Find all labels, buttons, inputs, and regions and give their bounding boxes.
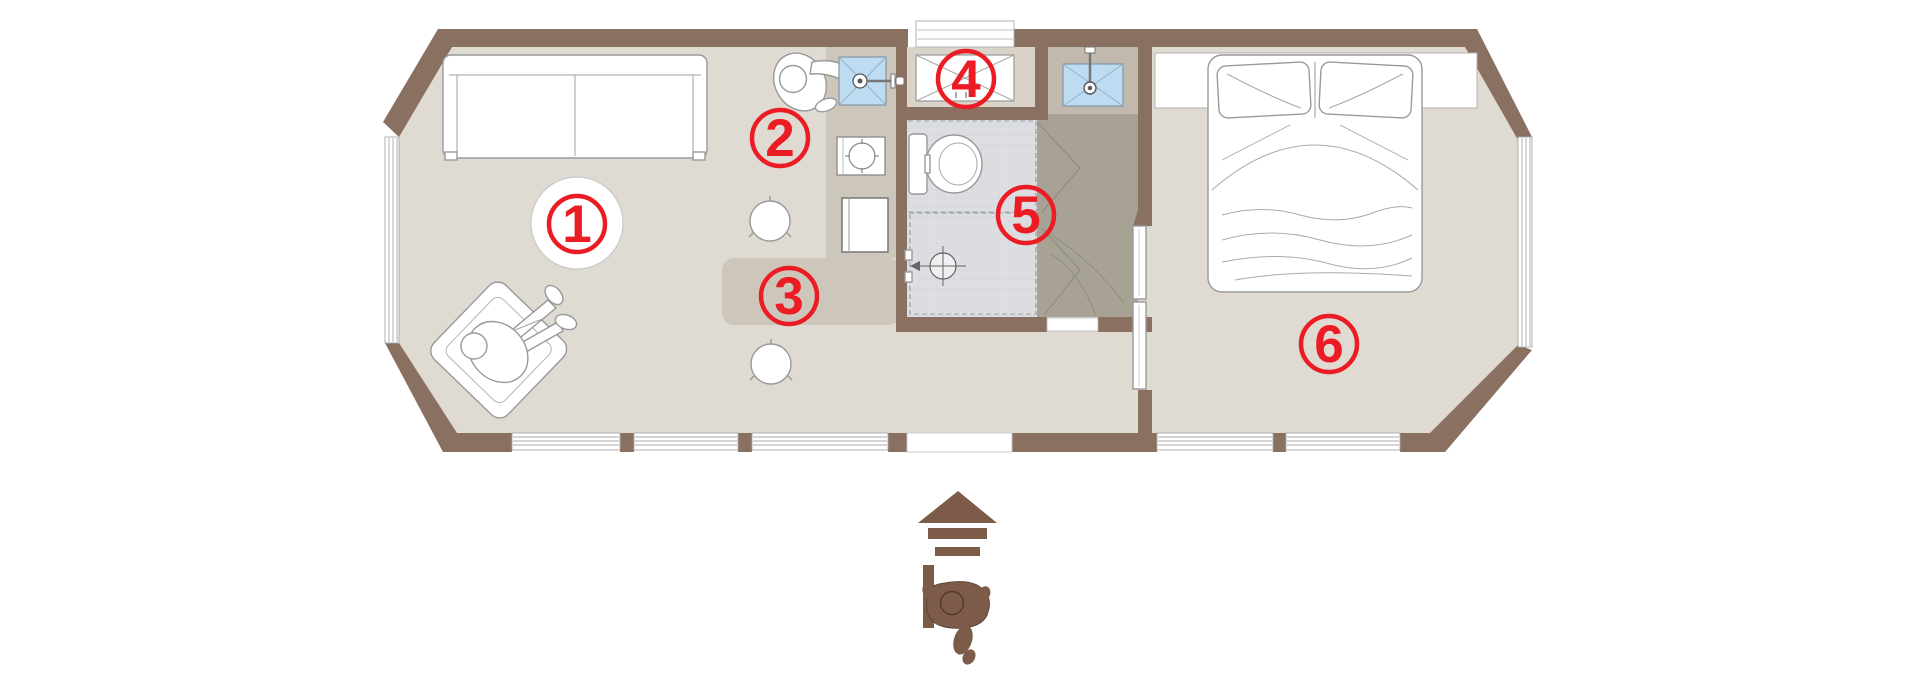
wall-top-left-span bbox=[438, 29, 908, 47]
window-bottom bbox=[634, 433, 738, 450]
double-bed bbox=[1208, 55, 1422, 292]
pillow bbox=[1319, 62, 1414, 119]
floor-plan-canvas: 1 2 3 4 5 6 bbox=[0, 0, 1920, 680]
window-bottom bbox=[512, 433, 620, 450]
wall-top-right-span bbox=[1013, 29, 1477, 47]
wall-bottom-segment bbox=[1012, 433, 1157, 452]
entrance-symbol bbox=[918, 491, 997, 667]
entrance-bar bbox=[935, 547, 980, 556]
marker-number: 3 bbox=[774, 267, 803, 326]
marker-number: 2 bbox=[765, 109, 794, 168]
marker-number: 6 bbox=[1314, 315, 1343, 374]
wall-bottom-segment bbox=[1400, 433, 1445, 452]
window-bottom bbox=[1157, 433, 1273, 450]
wall-bottom-pier bbox=[738, 433, 752, 452]
wall-bottom-segment bbox=[443, 433, 512, 452]
entrance-bar bbox=[928, 528, 987, 539]
wall-bottom-pier bbox=[888, 433, 907, 452]
window-bottom bbox=[1286, 433, 1400, 450]
marker-number: 1 bbox=[562, 195, 591, 254]
wall-bedroom-divider-bottom bbox=[1138, 390, 1152, 433]
wall-bottom-pier bbox=[620, 433, 634, 452]
wall-alcove-vestibule bbox=[1035, 47, 1048, 120]
entry-door-opening bbox=[907, 433, 1012, 452]
wall-bathroom-south bbox=[896, 317, 1047, 332]
window-right bbox=[1518, 137, 1532, 347]
pillow bbox=[1217, 62, 1312, 119]
sofa bbox=[443, 55, 707, 160]
entrance-arrow-icon bbox=[918, 491, 997, 523]
marker-number: 5 bbox=[1011, 186, 1040, 245]
toilet bbox=[909, 134, 982, 194]
window-bottom bbox=[752, 433, 888, 450]
refrigerator bbox=[842, 198, 888, 252]
wall-bedroom-divider-top bbox=[1138, 47, 1152, 210]
wall-kitchen-bathroom bbox=[896, 47, 907, 332]
floor-plan-drawing: 1 2 3 4 5 6 bbox=[0, 0, 1920, 680]
bedroom-door-leaves bbox=[1133, 226, 1146, 389]
cooktop bbox=[837, 137, 885, 175]
window-left bbox=[385, 137, 399, 343]
marker-number: 4 bbox=[951, 50, 981, 109]
wall-bottom-pier bbox=[1273, 433, 1286, 452]
